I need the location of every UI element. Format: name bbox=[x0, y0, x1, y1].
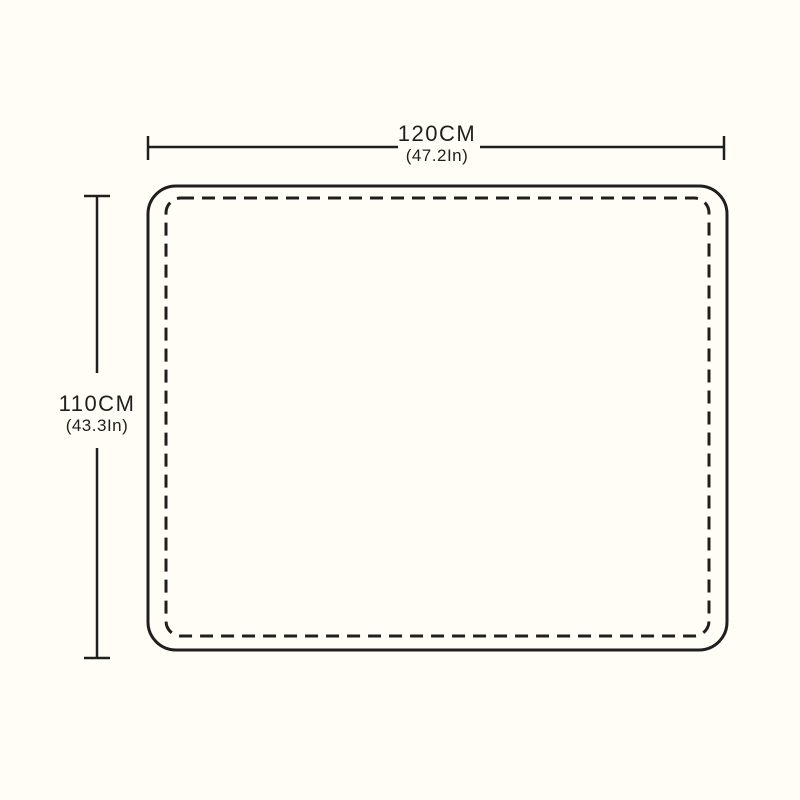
size-diagram: 120CM (47.2In) 110CM (43.3In) bbox=[0, 0, 800, 800]
width-imperial-value: (47.2In) bbox=[398, 146, 476, 166]
width-metric-value: 120CM bbox=[398, 121, 476, 146]
height-metric-value: 110CM bbox=[59, 391, 136, 416]
width-dimension-label: 120CM (47.2In) bbox=[398, 121, 476, 166]
height-dimension-label: 110CM (43.3In) bbox=[59, 391, 136, 436]
product-outline bbox=[148, 186, 727, 650]
stitch-border bbox=[166, 198, 709, 636]
height-imperial-value: (43.3In) bbox=[59, 416, 136, 436]
